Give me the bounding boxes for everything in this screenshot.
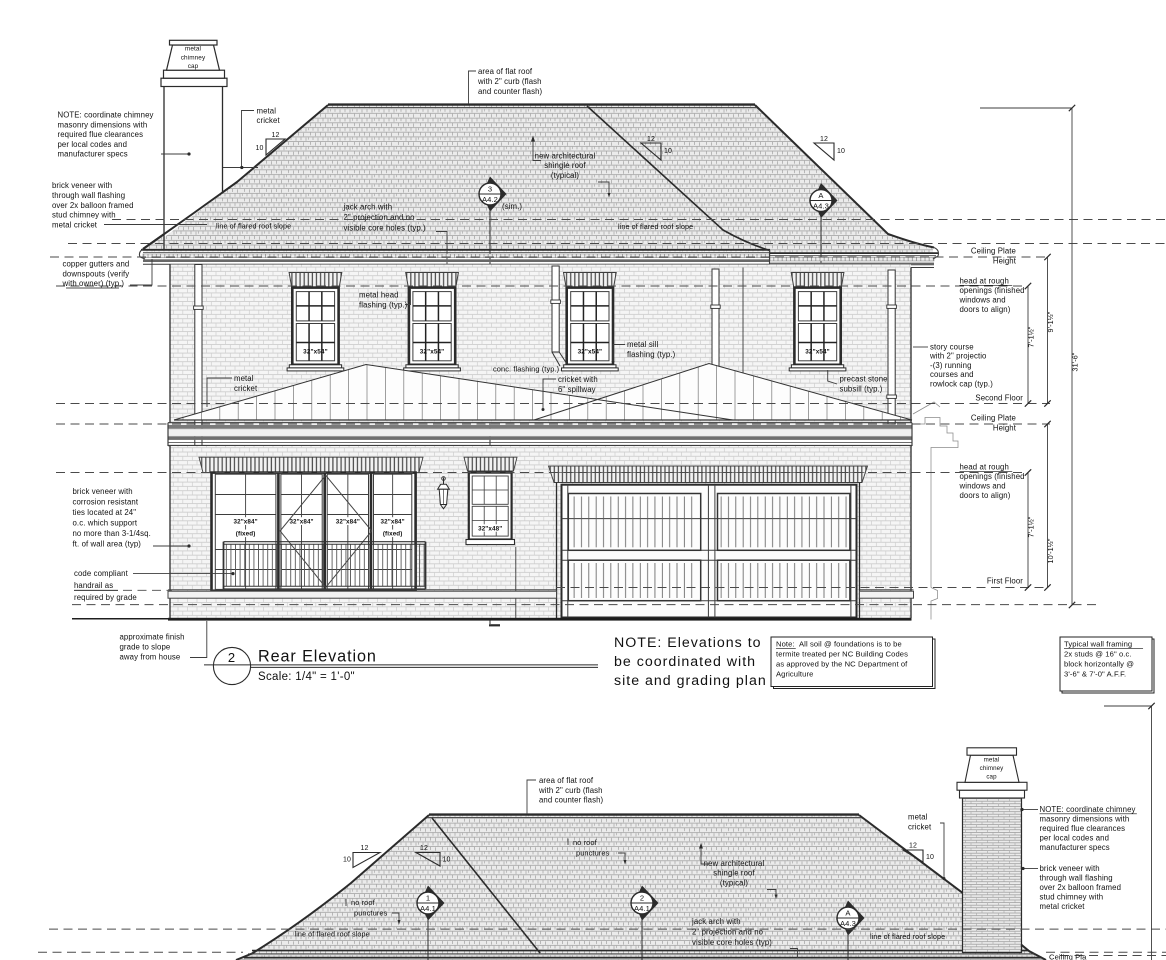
svg-text:32"x54": 32"x54": [805, 349, 830, 356]
svg-text:Typical wall framing: Typical wall framing: [1064, 640, 1132, 649]
svg-text:punctures: punctures: [576, 849, 610, 858]
svg-text:32"x84": 32"x84": [234, 519, 258, 526]
svg-text:grade to slope: grade to slope: [120, 643, 171, 652]
svg-text:metal: metal: [908, 813, 928, 822]
svg-text:through wall flashing: through wall flashing: [1040, 874, 1113, 883]
svg-text:subsill (typ.): subsill (typ.): [840, 385, 883, 394]
svg-text:12: 12: [647, 136, 655, 143]
svg-text:Height: Height: [993, 424, 1017, 433]
svg-text:A4.3: A4.3: [813, 202, 829, 211]
svg-text:doors to align): doors to align): [960, 305, 1011, 314]
svg-text:corrosion resistant: corrosion resistant: [73, 498, 139, 507]
svg-text:flashing (typ.): flashing (typ.): [359, 301, 408, 310]
svg-text:(typical): (typical): [720, 878, 748, 887]
svg-text:manufacturer specs: manufacturer specs: [1040, 843, 1110, 852]
svg-text:2" projection and no: 2" projection and no: [344, 213, 416, 222]
svg-text:approximate finish: approximate finish: [120, 633, 185, 642]
svg-text:NOTE: Elevations to: NOTE: Elevations to: [614, 635, 762, 651]
svg-text:3'-6" & 7'-0" A.F.F.: 3'-6" & 7'-0" A.F.F.: [1064, 670, 1126, 679]
svg-text:A: A: [845, 908, 851, 917]
svg-text:line of flared roof slope: line of flared roof slope: [618, 222, 693, 231]
svg-text:cricket: cricket: [908, 823, 932, 832]
svg-text:stud chimney with: stud chimney with: [52, 211, 116, 220]
svg-text:cap: cap: [986, 774, 997, 781]
svg-text:conc. flashing (typ.): conc. flashing (typ.): [493, 365, 559, 374]
svg-text:2: 2: [228, 650, 235, 665]
svg-text:metal sill: metal sill: [627, 340, 658, 349]
svg-text:cricket with: cricket with: [558, 375, 598, 384]
svg-text:cap: cap: [188, 63, 199, 70]
svg-text:shingle roof: shingle roof: [713, 869, 755, 878]
svg-text:A4.1: A4.1: [420, 904, 436, 913]
svg-text:brick veneer with: brick veneer with: [1040, 864, 1100, 873]
svg-text:windows and: windows and: [959, 296, 1006, 305]
svg-text:shingle roof: shingle roof: [544, 161, 586, 170]
svg-text:new architectural: new architectural: [535, 152, 596, 161]
svg-text:32"x54": 32"x54": [420, 349, 445, 356]
svg-text:site and grading plan: site and grading plan: [614, 673, 767, 689]
svg-text:2: 2: [640, 893, 644, 902]
svg-text:area of flat roof: area of flat roof: [539, 776, 594, 785]
svg-text:openings (finished: openings (finished: [960, 472, 1025, 481]
svg-text:A: A: [818, 191, 824, 200]
svg-text:code compliant: code compliant: [74, 569, 129, 578]
svg-text:Scale: 1/4" = 1'-0": Scale: 1/4" = 1'-0": [258, 671, 355, 683]
svg-text:3: 3: [488, 184, 492, 193]
svg-text:ties located at 24": ties located at 24": [73, 508, 137, 517]
svg-text:32"x84": 32"x84": [336, 519, 360, 526]
svg-text:brick veneer with: brick veneer with: [52, 181, 112, 190]
svg-text:(fixed): (fixed): [236, 531, 256, 538]
svg-text:no more than 3-1/4sq.: no more than 3-1/4sq.: [73, 529, 151, 538]
svg-text:visible core holes (typ): visible core holes (typ): [692, 938, 772, 947]
svg-text:chimney: chimney: [980, 765, 1005, 772]
svg-text:masonry dimensions with: masonry dimensions with: [1040, 815, 1130, 824]
svg-text:Rear Elevation: Rear Elevation: [258, 648, 377, 666]
svg-text:NOTE: coordinate chimney: NOTE: coordinate chimney: [1040, 805, 1136, 814]
svg-text:story course: story course: [930, 343, 974, 352]
svg-text:32"x84": 32"x84": [381, 519, 405, 526]
svg-text:12: 12: [361, 845, 369, 852]
svg-text:brick veneer with: brick veneer with: [73, 487, 133, 496]
svg-text:per local codes and: per local codes and: [1040, 834, 1110, 843]
svg-text:jack arch with: jack arch with: [343, 203, 393, 212]
svg-text:no roof: no roof: [573, 838, 598, 847]
svg-text:and counter flash): and counter flash): [478, 87, 543, 96]
svg-text:32"x48": 32"x48": [478, 526, 502, 533]
svg-text:punctures: punctures: [354, 909, 388, 918]
svg-text:1: 1: [426, 893, 430, 902]
svg-text:stud chimney with: stud chimney with: [1040, 893, 1104, 902]
svg-text:metal head: metal head: [359, 291, 399, 300]
svg-text:courses and: courses and: [930, 370, 974, 379]
svg-text:line of flared roof slope: line of flared roof slope: [870, 932, 945, 941]
svg-text:A4.3: A4.3: [840, 919, 856, 928]
svg-text:12: 12: [272, 132, 280, 139]
svg-text:copper gutters and: copper gutters and: [63, 260, 130, 269]
svg-text:with 2" curb (flash: with 2" curb (flash: [477, 77, 542, 86]
svg-text:Height: Height: [993, 257, 1017, 266]
svg-text:-(3) running: -(3) running: [930, 361, 972, 370]
svg-text:openings (finished: openings (finished: [960, 286, 1025, 295]
svg-text:over 2x balloon framed: over 2x balloon framed: [1040, 883, 1122, 892]
svg-text:no roof: no roof: [351, 898, 376, 907]
svg-text:metal cricket: metal cricket: [1040, 902, 1086, 911]
svg-text:new architectural: new architectural: [704, 859, 765, 868]
svg-text:NOTE: coordinate chimney: NOTE: coordinate chimney: [58, 111, 154, 120]
svg-text:(sim.): (sim.): [502, 202, 522, 211]
svg-text:(fixed): (fixed): [383, 531, 403, 538]
svg-text:32"x54": 32"x54": [578, 349, 603, 356]
svg-text:cricket: cricket: [257, 116, 281, 125]
svg-text:10: 10: [343, 857, 351, 864]
svg-text:metal cricket: metal cricket: [52, 221, 98, 230]
svg-text:Ceiling Pla: Ceiling Pla: [1049, 953, 1087, 960]
svg-text:masonry dimensions with: masonry dimensions with: [58, 120, 148, 129]
svg-text:block horizontally @: block horizontally @: [1064, 660, 1134, 669]
svg-text:First Floor: First Floor: [987, 577, 1023, 586]
svg-text:All soil @ foundations is to b: All soil @ foundations is to be: [799, 640, 902, 649]
svg-text:with 2" curb (flash: with 2" curb (flash: [538, 786, 603, 795]
svg-text:downspouts (verify: downspouts (verify: [63, 269, 130, 278]
svg-text:metal: metal: [257, 107, 277, 116]
svg-text:termite treated per NC Buildin: termite treated per NC Building Codes: [776, 650, 908, 659]
svg-text:rowlock cap (typ.): rowlock cap (typ.): [930, 379, 993, 388]
svg-text:32"x54": 32"x54": [303, 349, 328, 356]
svg-text:head at rough: head at rough: [960, 463, 1009, 472]
svg-text:metal: metal: [185, 46, 201, 53]
svg-text:Ceiling Plate: Ceiling Plate: [971, 414, 1016, 423]
svg-text:6" spillway: 6" spillway: [558, 385, 596, 394]
svg-text:visible core holes (typ.): visible core holes (typ.): [344, 224, 427, 233]
svg-text:32"x84": 32"x84": [289, 519, 313, 526]
svg-text:head at rough: head at rough: [960, 277, 1009, 286]
svg-text:A4.1: A4.1: [634, 904, 650, 913]
svg-text:doors to align): doors to align): [960, 491, 1011, 500]
svg-text:chimney: chimney: [181, 54, 206, 61]
svg-text:windows and: windows and: [959, 482, 1006, 491]
svg-text:10: 10: [443, 857, 451, 864]
svg-text:required flue clearances: required flue clearances: [1040, 824, 1126, 833]
svg-text:cricket: cricket: [234, 384, 258, 393]
svg-text:through wall flashing: through wall flashing: [52, 191, 125, 200]
svg-text:over 2x balloon framed: over 2x balloon framed: [52, 201, 134, 210]
svg-text:31'-6": 31'-6": [1071, 352, 1080, 371]
svg-text:jack arch with: jack arch with: [691, 917, 741, 926]
svg-text:required by grade: required by grade: [74, 593, 137, 602]
svg-text:ft. of wall area (typ): ft. of wall area (typ): [73, 540, 142, 549]
svg-text:with 2" projectio: with 2" projectio: [929, 352, 987, 361]
svg-text:12: 12: [909, 843, 917, 850]
svg-text:as approved by the NC Departme: as approved by the NC Department of: [776, 660, 908, 669]
svg-text:line of flared roof slope: line of flared roof slope: [216, 222, 291, 231]
svg-text:10: 10: [926, 854, 934, 861]
svg-text:A4.2: A4.2: [482, 195, 498, 204]
svg-text:7'-1½": 7'-1½": [1027, 516, 1036, 537]
svg-text:10'-1½": 10'-1½": [1046, 538, 1055, 563]
svg-text:metal: metal: [234, 374, 254, 383]
svg-text:Agriculture: Agriculture: [776, 670, 813, 679]
svg-text:10: 10: [837, 148, 845, 155]
svg-text:away from house: away from house: [120, 653, 181, 662]
svg-text:per local codes and: per local codes and: [58, 140, 128, 149]
svg-text:be coordinated with: be coordinated with: [614, 654, 756, 670]
svg-text:handrail as: handrail as: [74, 581, 113, 590]
svg-text:with owner) (typ.): with owner) (typ.): [62, 279, 125, 288]
svg-text:required flue clearances: required flue clearances: [58, 130, 144, 139]
svg-text:10: 10: [664, 148, 672, 155]
svg-text:line of flared roof slope: line of flared roof slope: [295, 930, 370, 939]
svg-text:9'-1½": 9'-1½": [1046, 311, 1055, 332]
svg-text:7'-1½": 7'-1½": [1027, 326, 1036, 347]
svg-text:(typical): (typical): [551, 171, 579, 180]
svg-text:2x studs @ 16" o.c.: 2x studs @ 16" o.c.: [1064, 650, 1132, 659]
svg-text:Second Floor: Second Floor: [975, 394, 1023, 403]
svg-text:Ceiling Plate: Ceiling Plate: [971, 247, 1016, 256]
svg-text:precast stone: precast stone: [840, 375, 888, 384]
svg-text:and counter flash): and counter flash): [539, 796, 604, 805]
svg-text:manufacturer specs: manufacturer specs: [58, 150, 128, 159]
svg-text:12: 12: [820, 136, 828, 143]
svg-text:o.c. which support: o.c. which support: [73, 519, 138, 528]
svg-text:flashing (typ.): flashing (typ.): [627, 350, 676, 359]
svg-text:10: 10: [256, 145, 264, 152]
svg-text:area of flat roof: area of flat roof: [478, 67, 533, 76]
svg-text:metal: metal: [984, 757, 1000, 764]
svg-text:12: 12: [420, 845, 428, 852]
svg-text:Note:: Note:: [776, 640, 795, 649]
